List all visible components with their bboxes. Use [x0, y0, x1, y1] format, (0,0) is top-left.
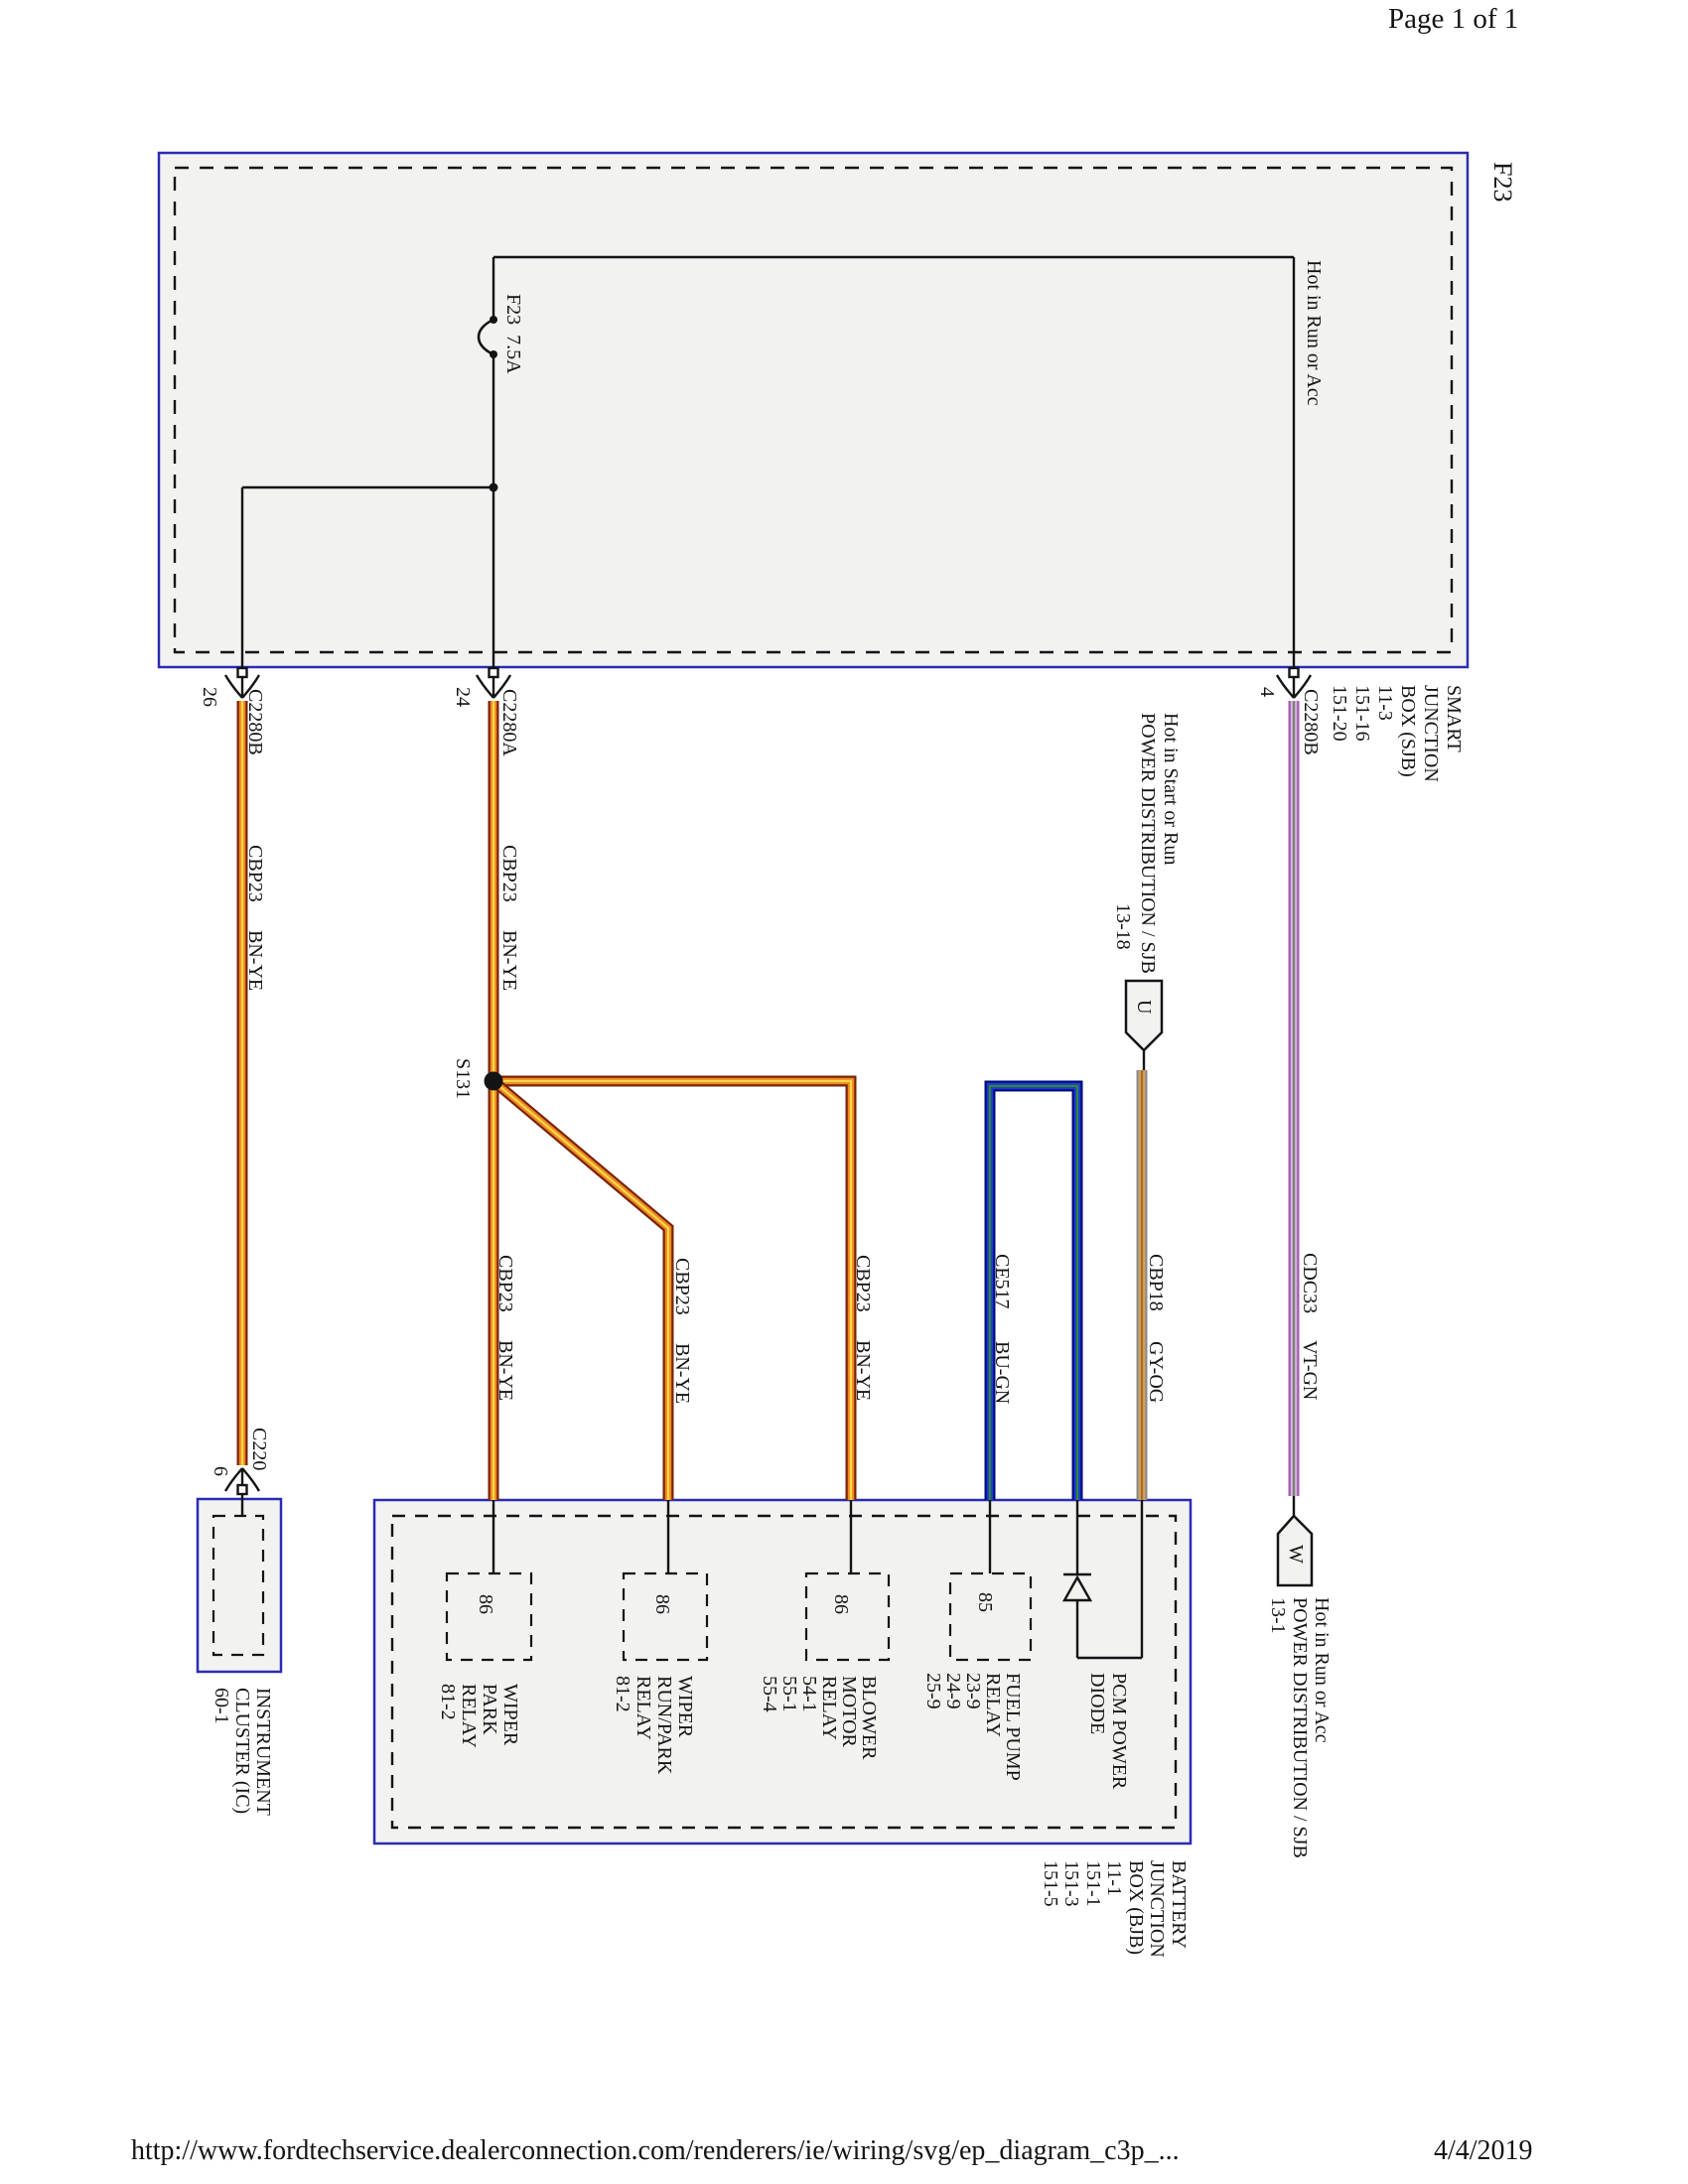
fuse-top-dot	[490, 316, 497, 324]
power-ref-u-text: Hot in Start or Run POWER DISTRIBUTION /…	[1136, 713, 1182, 974]
wire-label-circuit: CDC33	[1299, 1253, 1321, 1313]
sjb-box	[159, 153, 1468, 667]
power-ref-w-text: Hot in Run or Acc POWER DISTRIBUTION / S…	[1267, 1597, 1333, 1858]
wiring-diagram-page: Page 1 of 1 F23 Hot in Run or Acc F23 7.…	[0, 0, 1688, 2184]
pin-26-label: 26	[199, 687, 220, 707]
instrument-cluster-box	[198, 1499, 281, 1672]
bjb-reference-block: BATTERY JUNCTION BOX (BJB) 11-1 151-1 15…	[1040, 1860, 1190, 1958]
relay-pin-86: 86	[830, 1594, 852, 1614]
fuel-pump-relay-label: FUEL PUMP RELAY 23-9 24-9 25-9	[923, 1673, 1023, 1781]
wire-label-circuit: CBP23	[498, 845, 520, 902]
instrument-cluster-label: INSTRUMENT CLUSTER (IC) 60-1	[211, 1688, 273, 1816]
sjb-fuse-tag: F23	[1491, 162, 1513, 202]
connector-c2280a-label: C2280A	[498, 689, 520, 756]
sjb-branch-junction-dot	[490, 483, 498, 492]
wire-label-circuit: CBP18	[1145, 1254, 1167, 1311]
bjb-box	[374, 1500, 1191, 1843]
pin-6-label: 6	[210, 1466, 231, 1476]
sjb-bus-label: Hot in Run or Acc	[1303, 260, 1325, 406]
pcm-power-diode-label: PCM POWER DIODE	[1086, 1673, 1130, 1789]
wiring-diagram-canvas	[0, 0, 1688, 2184]
wire-label-circuit: CBP23	[852, 1255, 874, 1312]
relay-pin-86: 86	[475, 1594, 496, 1614]
relay-pin-86: 86	[651, 1594, 673, 1614]
fuse-bottom-dot	[490, 350, 497, 358]
power-ref-u-page: 13-18	[1112, 903, 1134, 950]
wire-label-color: BN-YE	[494, 1340, 516, 1401]
footer-url: http://www.fordtechservice.dealerconnect…	[131, 2140, 1180, 2162]
footer-date: 4/4/2019	[1434, 2140, 1533, 2162]
pin-4-label: 4	[1256, 687, 1278, 697]
wire-label-circuit: CBP23	[244, 845, 266, 902]
wire-label-circuit: CE517	[991, 1254, 1013, 1309]
relay-pin-85: 85	[974, 1592, 996, 1612]
sjb-reference-block: SMART JUNCTION BOX (SJB) 11-3 151-16 151…	[1328, 685, 1465, 782]
pin-24-label: 24	[452, 687, 474, 707]
blower-motor-relay-label: BLOWER MOTOR RELAY 54-1 55-1 55-4	[760, 1676, 879, 1759]
connector-c220-label: C220	[248, 1428, 270, 1470]
wire-label-circuit: CBP23	[494, 1255, 516, 1312]
connector-c2280b-left-label: C2280B	[244, 689, 266, 755]
wire-label-color: VT-GN	[1299, 1340, 1321, 1400]
splice-s131-dot	[485, 1072, 503, 1091]
splice-s131-label: S131	[452, 1058, 474, 1099]
wire-label-color: BN-YE	[671, 1343, 693, 1404]
connector-c2280b-right-label: C2280B	[1300, 689, 1322, 755]
fuse-label: F23 7.5A	[502, 294, 524, 374]
power-ref-u-letter: U	[1133, 1000, 1155, 1014]
wire-label-color: BN-YE	[852, 1340, 874, 1401]
wire-label-color: GY-OG	[1145, 1341, 1167, 1403]
wire-label-color: BN-YE	[498, 930, 520, 991]
wiper-runpark-relay-label: WIPER RUN/PARK RELAY 81-2	[612, 1676, 695, 1774]
wire-cbp23-branch-runpark	[493, 1081, 668, 1500]
wire-label-color: BU-GN	[991, 1341, 1013, 1404]
wire-label-circuit: CBP23	[671, 1258, 693, 1315]
power-ref-w-letter: W	[1285, 1545, 1307, 1564]
page-header: Page 1 of 1	[1388, 8, 1518, 30]
power-ref-u-pentagon	[1126, 981, 1162, 1050]
wire-label-color: BN-YE	[244, 930, 266, 991]
wiper-park-relay-label: WIPER PARK RELAY 81-2	[437, 1684, 520, 1748]
